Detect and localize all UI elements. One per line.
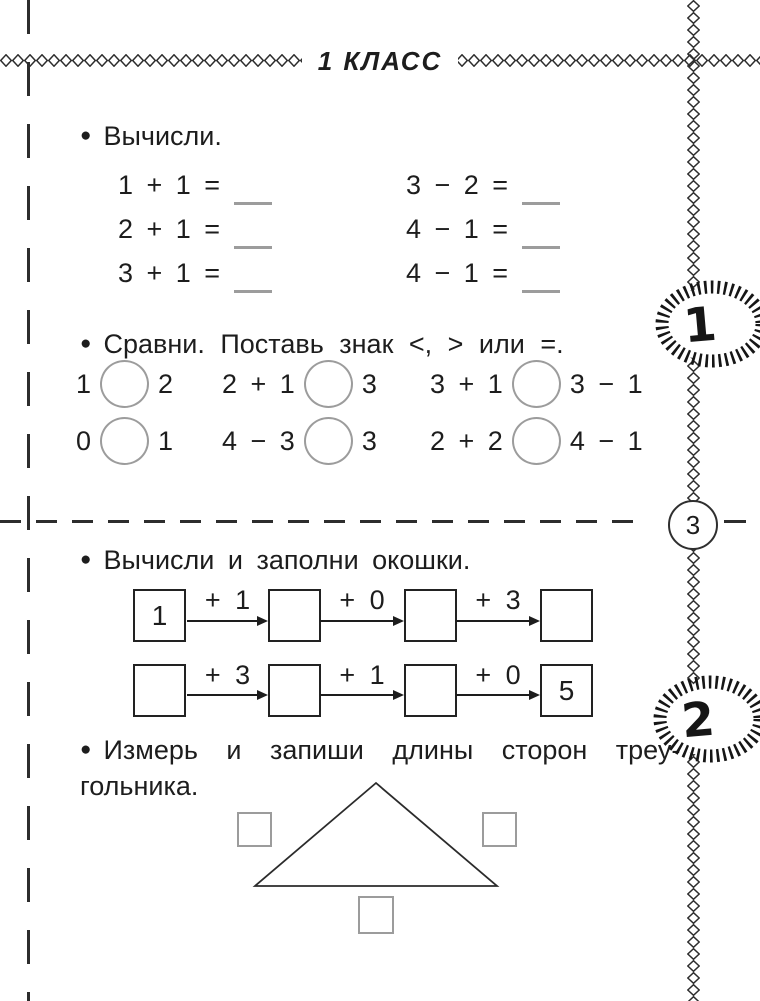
bullet-icon: ● [80,733,91,767]
arrow-right-icon [320,613,404,629]
equation-row: 3 + 1 = [118,256,272,290]
comparison-sign-circle[interactable] [304,360,353,408]
chain-box-empty[interactable] [133,664,186,717]
arrow-right-icon [456,687,540,703]
chain-box-value: 1 [152,600,168,632]
equation: 4 − 1 = [406,212,508,246]
equation-row: 4 − 1 = [406,212,560,246]
page-divider-dash-right [724,520,746,523]
compare-left: 1 [76,369,91,400]
page-number: 3 [686,510,700,541]
stamp-number: 1 [681,297,718,355]
task-triangle-title-line2: гольника. [80,769,198,803]
bullet-icon: ● [80,327,91,361]
arrow-right-icon [187,613,268,629]
compare-left: 4 − 3 [222,426,295,457]
operation-label: + 1 [320,661,404,689]
task-chains-title: Вычисли и заполни окошки. [103,543,470,577]
page-title: 1 КЛАСС [302,44,459,78]
compare-item: 4 − 3 3 [222,418,377,464]
left-margin-dashed-line [27,0,30,1001]
answer-blank[interactable] [234,168,272,205]
arrow-right-icon [320,687,404,703]
compare-item: 0 1 [76,418,173,464]
compare-left: 2 + 2 [430,426,503,457]
equation-row: 1 + 1 = [118,168,272,202]
chain-box-empty[interactable] [404,589,457,642]
answer-blank[interactable] [234,256,272,293]
equation-row: 2 + 1 = [118,212,272,246]
stamp-badge-2: 2 [648,663,760,775]
chain-box-empty[interactable] [404,664,457,717]
task-triangle-heading: ● Измерь и запиши длины сторон треу- [80,733,680,767]
task-compare-heading: ● Сравни. Поставь знак <, > или =. [80,327,564,361]
task-calculate-title: Вычисли. [103,119,221,153]
compare-item: 1 2 [76,361,173,407]
measure-box-right-side[interactable] [482,812,517,847]
compare-item: 3 + 1 3 − 1 [430,361,643,407]
comparison-sign-circle[interactable] [100,417,149,465]
equation: 4 − 1 = [406,256,508,290]
compare-left: 0 [76,426,91,457]
page-number-badge: 3 [668,500,718,550]
equation: 3 + 1 = [118,256,220,290]
operation-label: + 1 [187,586,268,614]
answer-blank[interactable] [522,212,560,249]
compare-right: 3 − 1 [570,369,643,400]
task-chains-heading: ● Вычисли и заполни окошки. [80,543,470,577]
compare-right: 1 [158,426,173,457]
compare-item: 2 + 2 4 − 1 [430,418,643,464]
answer-blank[interactable] [522,256,560,293]
page-divider-dashed-line [0,520,648,523]
equation-row: 4 − 1 = [406,256,560,290]
worksheet-page: 1 КЛАСС 1 2 3 ● Вычисли. 1 + 1 = 2 + 1 =… [0,0,760,1001]
compare-item: 2 + 1 3 [222,361,377,407]
chain-box-value: 5 [559,675,575,707]
task-calculate-heading: ● Вычисли. [80,119,222,153]
page-header: 1 КЛАСС [0,44,760,78]
equation: 2 + 1 = [118,212,220,246]
chain-box-empty[interactable] [268,589,321,642]
compare-right: 2 [158,369,173,400]
comparison-sign-circle[interactable] [512,417,561,465]
answer-blank[interactable] [522,168,560,205]
triangle-figure [240,777,510,891]
equation-row: 3 − 2 = [406,168,560,202]
compare-right: 3 [362,369,377,400]
operation-label: + 3 [456,586,540,614]
measure-box-left-side[interactable] [237,812,272,847]
operation-label: + 0 [320,586,404,614]
stamp-badge-1: 1 [650,268,760,380]
arrow-right-icon [456,613,540,629]
chain-box-empty[interactable] [268,664,321,717]
compare-right: 3 [362,426,377,457]
measure-box-bottom-side[interactable] [358,896,394,934]
stamp-number: 2 [679,692,716,750]
compare-left: 2 + 1 [222,369,295,400]
arrow-right-icon [187,687,268,703]
task-triangle-title-line1: Измерь и запиши длины сторон треу- [103,733,680,767]
compare-right: 4 − 1 [570,426,643,457]
bullet-icon: ● [80,119,91,153]
comparison-sign-circle[interactable] [304,417,353,465]
compare-left: 3 + 1 [430,369,503,400]
chain-box-empty[interactable] [540,589,593,642]
answer-blank[interactable] [234,212,272,249]
comparison-sign-circle[interactable] [100,360,149,408]
equation: 3 − 2 = [406,168,508,202]
operation-label: + 3 [187,661,268,689]
chain-box-given: 1 [133,589,186,642]
task-compare-title: Сравни. Поставь знак <, > или =. [103,327,563,361]
equation: 1 + 1 = [118,168,220,202]
comparison-sign-circle[interactable] [512,360,561,408]
bullet-icon: ● [80,543,91,577]
operation-label: + 0 [456,661,540,689]
chain-box-given: 5 [540,664,593,717]
